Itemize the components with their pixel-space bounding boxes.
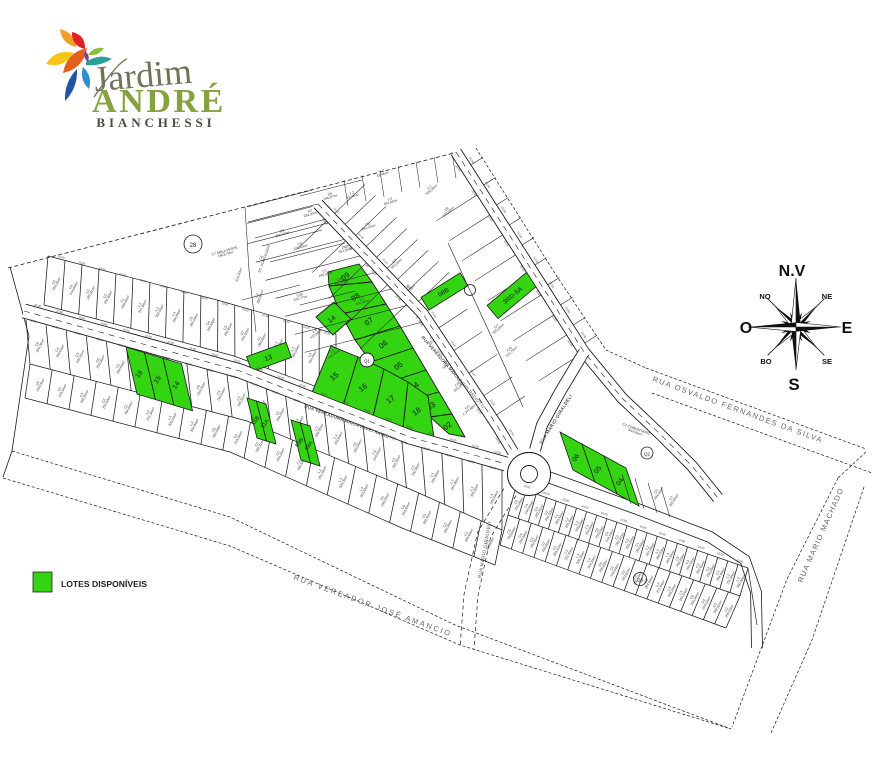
svg-text:Q1: Q1 bbox=[364, 359, 371, 364]
svg-text:Q3: Q3 bbox=[637, 578, 644, 583]
svg-text:NE: NE bbox=[822, 292, 832, 301]
svg-text:NO: NO bbox=[759, 292, 770, 301]
svg-text:28: 28 bbox=[190, 243, 197, 249]
svg-text:BIANCHESSI: BIANCHESSI bbox=[96, 115, 215, 130]
svg-text:E: E bbox=[842, 320, 853, 337]
svg-text:N.V: N.V bbox=[779, 263, 806, 280]
svg-text:BO: BO bbox=[760, 357, 771, 366]
svg-text:SE: SE bbox=[822, 357, 832, 366]
svg-text:Q2: Q2 bbox=[644, 452, 651, 457]
svg-text:LOTES DISPONÍVEIS: LOTES DISPONÍVEIS bbox=[61, 579, 147, 589]
svg-text:S: S bbox=[788, 375, 799, 394]
svg-text:O: O bbox=[740, 320, 752, 337]
